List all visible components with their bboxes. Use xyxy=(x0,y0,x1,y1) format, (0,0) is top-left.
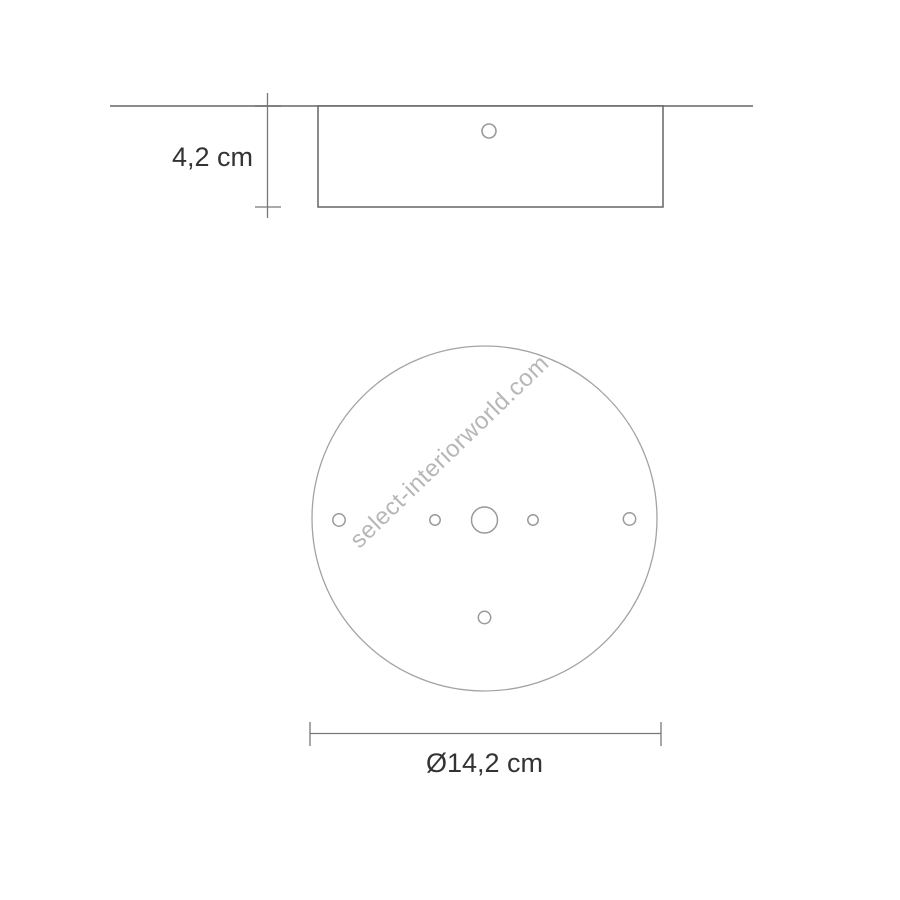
technical-drawing-canvas: 4,2 cm Ø14,2 cm select-interiorworld.com xyxy=(0,0,900,900)
mount-hole-bottom xyxy=(478,611,490,623)
height-dimension-label: 4,2 cm xyxy=(160,144,253,171)
mount-hole-inner-right xyxy=(528,515,538,525)
canopy-side-outline xyxy=(318,106,663,207)
mount-hole-right xyxy=(623,513,635,525)
diameter-dimension-label: Ø14,2 cm xyxy=(384,750,585,777)
mount-hole-left xyxy=(333,514,345,526)
side-view-cable-hole xyxy=(482,124,496,138)
mount-hole-inner-left xyxy=(430,515,440,525)
center-cable-hole xyxy=(472,507,498,533)
